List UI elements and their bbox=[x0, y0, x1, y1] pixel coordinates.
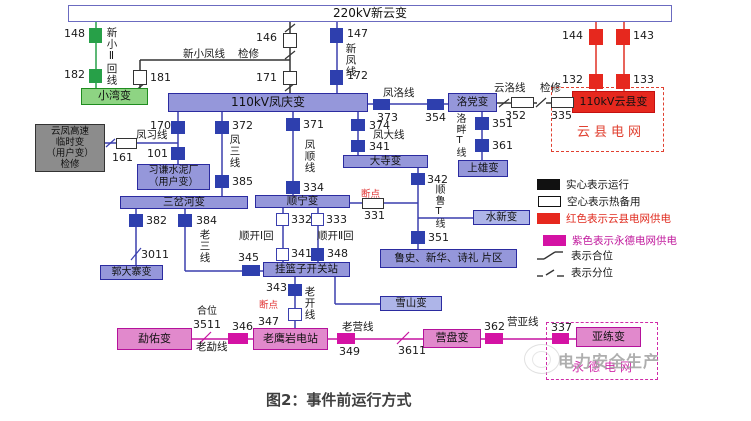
watermark-text: 电力安全生产 bbox=[558, 348, 660, 372]
label-332: 332 bbox=[291, 214, 312, 225]
breaker-144 bbox=[589, 29, 603, 45]
breaker-349 bbox=[337, 333, 355, 344]
label-132: 132 bbox=[562, 74, 583, 85]
label-371: 371 bbox=[303, 119, 324, 130]
station-gualanzi: 挂篮子开关站 bbox=[263, 262, 350, 277]
breaker-346 bbox=[228, 333, 248, 344]
station-yalian: 亚练变 bbox=[576, 327, 641, 347]
breaker-374 bbox=[351, 119, 365, 131]
label-老三线: 老三线 bbox=[199, 229, 210, 264]
bus-220kv-xinyun: 220kV新云变 bbox=[68, 5, 672, 22]
label-101: 101 bbox=[147, 148, 168, 159]
label-361: 361 bbox=[492, 140, 513, 151]
label-顺鲁T线: 顺鲁T线 bbox=[433, 184, 443, 229]
station-shangxiong: 上雄变 bbox=[458, 160, 508, 177]
label-333: 333 bbox=[326, 214, 347, 225]
breaker-348 bbox=[311, 248, 324, 261]
breaker-332 bbox=[276, 213, 289, 226]
label-335: 335 bbox=[551, 110, 572, 121]
switch-3611 bbox=[397, 332, 409, 344]
breaker-171 bbox=[283, 71, 297, 85]
label-346: 346 bbox=[232, 321, 253, 332]
label-老营线: 老营线 bbox=[342, 322, 374, 333]
legend-row-0: 实心表示运行 bbox=[537, 177, 629, 192]
label-133: 133 bbox=[633, 74, 654, 85]
breaker-372 bbox=[215, 121, 229, 134]
label-341: 341 bbox=[369, 141, 390, 152]
label-181: 181 bbox=[150, 72, 171, 83]
label-345: 345 bbox=[238, 252, 259, 263]
label-新小凤线: 新小凤线 bbox=[183, 49, 225, 60]
label-老勐线: 老勐线 bbox=[196, 342, 228, 353]
label-384: 384 bbox=[196, 215, 217, 226]
breaker-333 bbox=[311, 213, 324, 226]
label-171: 171 bbox=[256, 72, 277, 83]
breaker-351-luopan bbox=[475, 117, 489, 130]
breaker-373 bbox=[373, 99, 390, 110]
breaker-101 bbox=[171, 147, 185, 160]
breaker-361 bbox=[475, 139, 489, 152]
legend-label: 实心表示运行 bbox=[566, 177, 629, 192]
label-检修: 检修 bbox=[540, 83, 561, 94]
label-351: 351 bbox=[492, 118, 513, 129]
label-顺开Ⅱ回: 顺开Ⅱ回 bbox=[317, 231, 354, 242]
label-新小Ⅱ回线: 新小Ⅱ回线 bbox=[106, 27, 117, 86]
label-343: 343 bbox=[266, 282, 287, 293]
breaker-181 bbox=[133, 70, 147, 85]
label-凤顺线: 凤顺线 bbox=[304, 139, 315, 174]
station-shuixin: 水新变 bbox=[473, 210, 530, 225]
breaker-143 bbox=[616, 29, 630, 45]
breaker-341-gualanzi bbox=[276, 248, 289, 261]
label-372: 372 bbox=[232, 120, 253, 131]
station-guodazhai: 郭大寨变 bbox=[100, 265, 163, 280]
label-营亚线: 营亚线 bbox=[507, 317, 539, 328]
legend-row-3: 紫色表示永德电网供电 bbox=[543, 233, 677, 248]
breaker-382 bbox=[129, 214, 143, 227]
breaker-132 bbox=[589, 74, 603, 89]
legend-hollow-swatch bbox=[538, 196, 561, 207]
breaker-371 bbox=[286, 118, 300, 131]
station-yunfeng-temp: 云凤高速 临时变 （用户变） 检修 bbox=[35, 124, 105, 172]
breaker-334 bbox=[286, 181, 300, 194]
label-3011: 3011 bbox=[141, 249, 169, 260]
diagram-canvas: 图2：事件前运行方式 电力安全生产 云县电网永德电网220kV新云变小湾变110… bbox=[0, 0, 751, 421]
station-xiqian-cement: 习谦水泥厂 （用户变） bbox=[137, 164, 210, 190]
bus-sanchahe: 三岔河变 bbox=[120, 196, 248, 209]
label-合位: 合位 bbox=[197, 307, 217, 317]
label-老开线: 老开线 bbox=[304, 286, 315, 321]
bus-110kv-fengqing: 110kV凤庆变 bbox=[168, 93, 368, 112]
label-凤习线: 凤习线 bbox=[136, 130, 168, 141]
station-yingpan: 营盘变 bbox=[423, 329, 481, 348]
switch-closed-icon bbox=[537, 250, 565, 262]
label-182: 182 bbox=[64, 69, 85, 80]
label-172: 172 bbox=[347, 70, 368, 81]
label-凤大线: 凤大线 bbox=[373, 130, 405, 141]
breaker-147 bbox=[330, 28, 343, 43]
label-382: 382 bbox=[146, 215, 167, 226]
breaker-341-dasi bbox=[351, 140, 365, 152]
label-354: 354 bbox=[425, 112, 446, 123]
label-347: 347 bbox=[258, 316, 279, 327]
legend-label: 紫色表示永德电网供电 bbox=[572, 233, 677, 248]
label-断点: 断点 bbox=[259, 301, 278, 311]
legend-row-4: 表示合位 bbox=[537, 248, 613, 263]
breaker-172 bbox=[330, 70, 343, 85]
breaker-362 bbox=[485, 333, 503, 344]
label-云洛线: 云洛线 bbox=[494, 83, 526, 94]
breaker-343 bbox=[288, 284, 302, 296]
bus-shunning: 顺宁变 bbox=[255, 195, 350, 208]
label-351: 351 bbox=[428, 232, 449, 243]
label-148: 148 bbox=[64, 28, 85, 39]
region-yunxian-grid-label: 云县电网 bbox=[577, 126, 645, 139]
area-lushi: 鲁史、新华、诗礼 片区 bbox=[380, 249, 517, 268]
watermark-logo-inner bbox=[532, 351, 551, 368]
label-146: 146 bbox=[256, 32, 277, 43]
label-顺开Ⅰ回: 顺开Ⅰ回 bbox=[239, 231, 274, 242]
label-3511: 3511 bbox=[193, 319, 221, 330]
breaker-146 bbox=[283, 33, 297, 48]
legend-label: 表示分位 bbox=[571, 265, 613, 280]
station-xiaowan: 小湾变 bbox=[81, 88, 148, 105]
legend-row-1: 空心表示热备用 bbox=[538, 194, 641, 209]
label-147: 147 bbox=[347, 28, 368, 39]
breaker-385 bbox=[215, 175, 229, 188]
label-143: 143 bbox=[633, 30, 654, 41]
label-3611: 3611 bbox=[398, 345, 426, 356]
label-337: 337 bbox=[551, 322, 572, 333]
switch-open-icon bbox=[537, 267, 565, 279]
breaker-337 bbox=[552, 333, 569, 344]
breaker-384 bbox=[178, 214, 192, 227]
breaker-148 bbox=[89, 28, 102, 43]
station-laoyingyan: 老鹰岩电站 bbox=[253, 328, 328, 350]
station-xueshan: 雪山变 bbox=[380, 296, 442, 311]
label-161: 161 bbox=[112, 152, 133, 163]
breaker-342 bbox=[411, 173, 425, 185]
breaker-345 bbox=[242, 265, 260, 276]
station-mengyou: 勐佑变 bbox=[117, 328, 192, 350]
breaker-161 bbox=[116, 138, 137, 149]
legend-solid-swatch bbox=[537, 179, 560, 190]
legend-label: 表示合位 bbox=[571, 248, 613, 263]
switch-yunluo-open bbox=[536, 98, 546, 107]
legend-label: 红色表示云县电网供电 bbox=[566, 211, 671, 226]
breaker-182 bbox=[89, 69, 102, 83]
label-385: 385 bbox=[232, 176, 253, 187]
legend-solid-swatch bbox=[543, 235, 566, 246]
label-凤洛线: 凤洛线 bbox=[383, 88, 415, 99]
breaker-133 bbox=[616, 74, 630, 89]
breaker-335 bbox=[551, 97, 574, 108]
label-洛畔T线: 洛畔T线 bbox=[454, 113, 464, 158]
label-断点: 断点 bbox=[361, 190, 380, 200]
label-331: 331 bbox=[364, 210, 385, 221]
legend-label: 空心表示热备用 bbox=[567, 194, 641, 209]
label-348: 348 bbox=[327, 248, 348, 259]
breaker-352 bbox=[511, 97, 534, 108]
breaker-170 bbox=[171, 121, 185, 134]
breaker-354 bbox=[427, 99, 444, 110]
label-362: 362 bbox=[484, 321, 505, 332]
label-检修: 检修 bbox=[238, 49, 259, 60]
label-凤三线: 凤三线 bbox=[229, 134, 240, 169]
legend-solid-swatch bbox=[537, 213, 560, 224]
station-luodang: 洛党变 bbox=[448, 93, 497, 112]
breaker-347 bbox=[288, 308, 302, 321]
station-110kv-yunxian: 110kV云县变 bbox=[572, 91, 655, 113]
station-dasi: 大寺变 bbox=[343, 155, 428, 168]
breaker-351-shunlu bbox=[411, 231, 425, 244]
legend-row-5: 表示分位 bbox=[537, 265, 613, 280]
label-334: 334 bbox=[303, 182, 324, 193]
label-144: 144 bbox=[562, 30, 583, 41]
label-341: 341 bbox=[291, 248, 312, 259]
label-349: 349 bbox=[339, 346, 360, 357]
legend-row-2: 红色表示云县电网供电 bbox=[537, 211, 671, 226]
figure-caption: 图2：事件前运行方式 bbox=[266, 389, 411, 410]
